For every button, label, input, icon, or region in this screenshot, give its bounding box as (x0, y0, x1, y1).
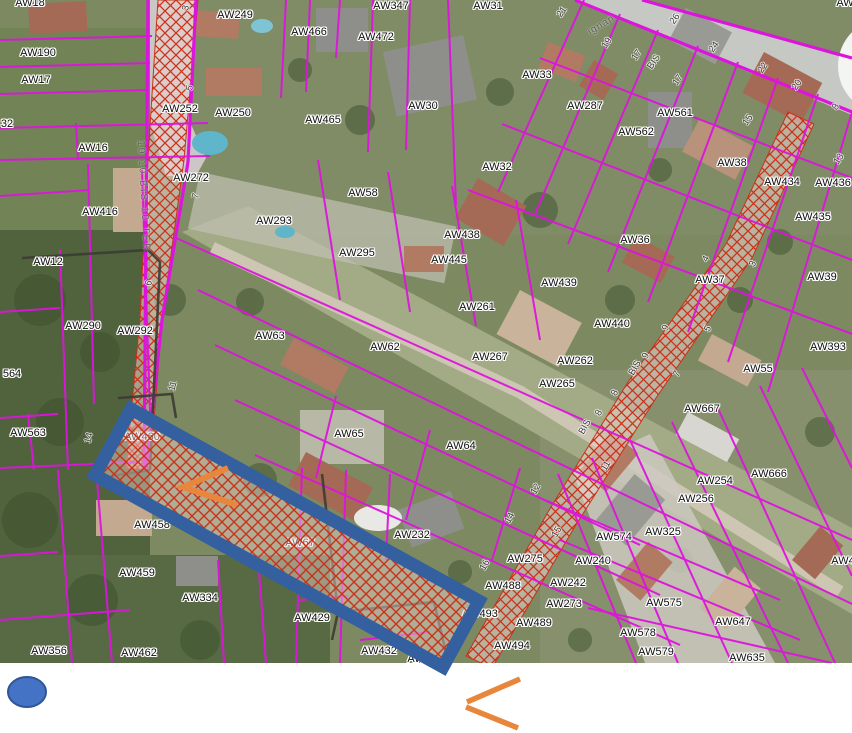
legend: Limites de parcelle (519AW67) VUE (0, 663, 852, 733)
vue-legend-icon (466, 679, 520, 728)
parcel-legend-symbol (8, 677, 46, 707)
dark-boundaries (22, 250, 448, 661)
map-viewport: AW18AW249AW347AW31AWAW466AW472AW190AW17A… (0, 0, 852, 733)
cadastral-map[interactable]: AW18AW249AW347AW31AWAW466AW472AW190AW17A… (0, 0, 852, 663)
parcel-line-network (0, 0, 852, 663)
